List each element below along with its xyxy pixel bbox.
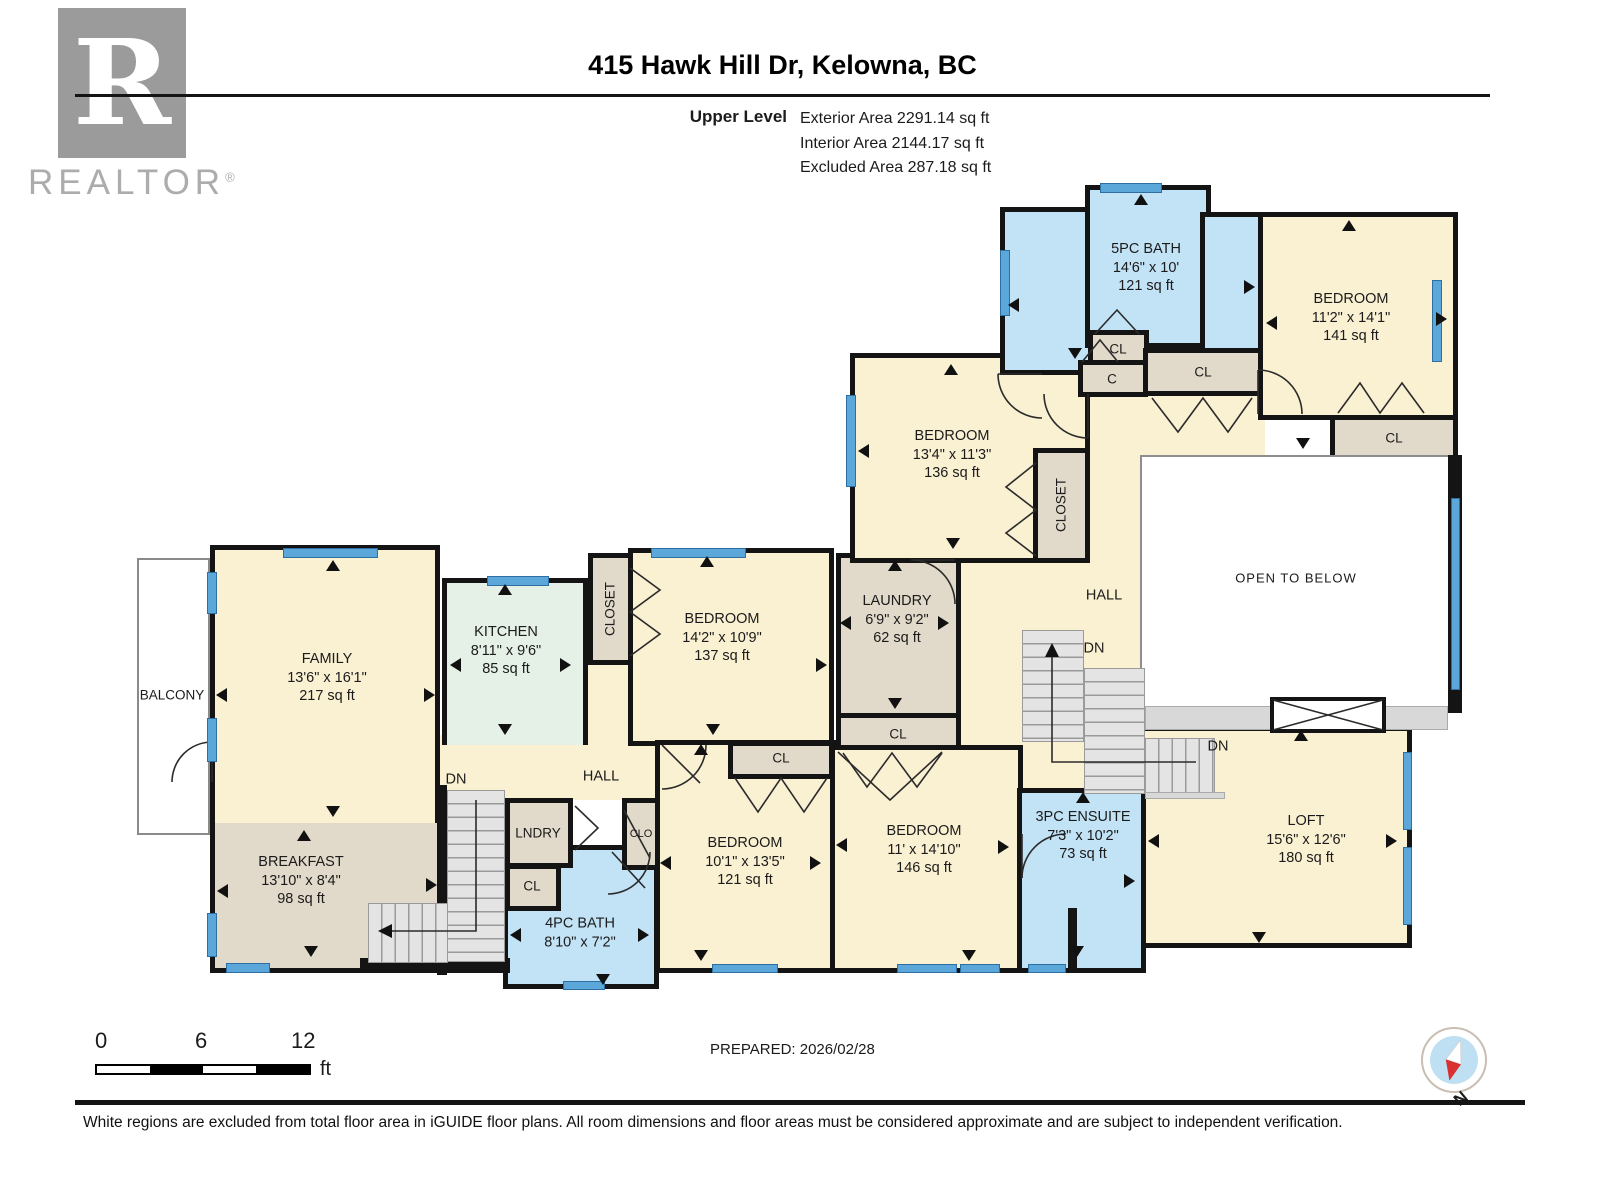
dimension-arrow bbox=[1252, 932, 1266, 943]
dimension-arrow bbox=[694, 950, 708, 961]
dimension-arrow bbox=[217, 884, 228, 898]
window bbox=[1403, 752, 1412, 830]
label-cl: CL bbox=[1109, 340, 1126, 357]
window bbox=[207, 572, 217, 614]
label-3pc-ensuite: 3PC ENSUITE7'3" x 10'2"73 sq ft bbox=[1035, 808, 1130, 864]
dimension-arrow bbox=[888, 560, 902, 571]
label-4pc-bath: 4PC BATH8'10" x 7'2" bbox=[544, 914, 615, 951]
dimension-arrow bbox=[1068, 348, 1082, 359]
dimension-arrow bbox=[944, 364, 958, 375]
label-cl: CL bbox=[889, 725, 906, 742]
dimension-arrow bbox=[1436, 312, 1447, 326]
dimension-arrow bbox=[498, 724, 512, 735]
label-cl: CL bbox=[1385, 429, 1402, 446]
label-bedroom-ne: BEDROOM11'2" x 14'1"141 sq ft bbox=[1312, 290, 1390, 346]
label-bedroom-s2: BEDROOM11' x 14'10"146 sq ft bbox=[887, 822, 962, 878]
label-family: FAMILY13'6" x 16'1"217 sq ft bbox=[287, 650, 367, 706]
label-dn-left: DN bbox=[446, 771, 467, 790]
window bbox=[1451, 498, 1460, 690]
dimension-arrow bbox=[426, 878, 437, 892]
dimension-arrow bbox=[424, 688, 435, 702]
label-cl: CL bbox=[772, 749, 789, 766]
window bbox=[207, 718, 217, 762]
dimension-arrow bbox=[938, 616, 949, 630]
window bbox=[226, 963, 270, 973]
dimension-arrow bbox=[836, 838, 847, 852]
scale-bar-unit: ft bbox=[320, 1058, 331, 1081]
stair-ledge bbox=[1145, 792, 1225, 799]
dimension-arrow bbox=[1386, 834, 1397, 848]
dimension-arrow bbox=[888, 698, 902, 709]
dimension-arrow bbox=[962, 950, 976, 961]
disclaimer-text: White regions are excluded from total fl… bbox=[83, 1114, 1343, 1132]
dimension-arrow bbox=[1266, 316, 1277, 330]
dimension-arrow bbox=[700, 556, 714, 567]
dimension-arrow bbox=[998, 840, 1009, 854]
label-closet-n: CLOSET bbox=[1052, 478, 1069, 532]
label-5pc-bath: 5PC BATH14'6" x 10'121 sq ft bbox=[1111, 240, 1181, 296]
label-dn-center: DN bbox=[1084, 640, 1105, 659]
staircase-loft-flight bbox=[1145, 738, 1215, 794]
dimension-arrow bbox=[858, 444, 869, 458]
scale-bar bbox=[95, 1064, 311, 1075]
label-clo: CLO bbox=[630, 827, 653, 841]
window bbox=[1028, 964, 1066, 973]
compass-needle bbox=[1424, 1030, 1484, 1090]
label-kitchen: KITCHEN8'11" x 9'6"85 sq ft bbox=[471, 623, 541, 679]
shaft-x-box bbox=[1270, 697, 1386, 733]
dimension-arrow bbox=[1134, 194, 1148, 205]
dimension-arrow bbox=[326, 560, 340, 571]
dimension-arrow bbox=[510, 928, 521, 942]
dimension-arrow bbox=[660, 856, 671, 870]
dimension-arrow bbox=[1244, 280, 1255, 294]
staircase-center-flight bbox=[1022, 630, 1084, 742]
compass-icon bbox=[1421, 1027, 1487, 1093]
label-lndry: LNDRY bbox=[515, 824, 561, 841]
window bbox=[897, 964, 957, 973]
window bbox=[207, 913, 217, 957]
label-bedroom-n: BEDROOM13'4" x 11'3"136 sq ft bbox=[913, 427, 991, 483]
dimension-arrow bbox=[810, 856, 821, 870]
label-bedroom-s1: BEDROOM10'1" x 13'5"121 sq ft bbox=[705, 834, 785, 890]
dimension-arrow bbox=[1070, 946, 1084, 957]
dimension-arrow bbox=[450, 658, 461, 672]
label-cl: CL bbox=[1194, 363, 1211, 380]
dimension-arrow bbox=[706, 724, 720, 735]
dimension-arrow bbox=[326, 806, 340, 817]
dimension-arrow bbox=[816, 658, 827, 672]
staircase-center-landing bbox=[1084, 668, 1145, 794]
floor-plan: FAMILY13'6" x 16'1"217 sq ft KITCHEN8'11… bbox=[0, 0, 1600, 1200]
window bbox=[487, 576, 549, 586]
window bbox=[1403, 847, 1412, 925]
wall-segment bbox=[1068, 908, 1077, 968]
label-c: C bbox=[1107, 370, 1117, 387]
dimension-arrow bbox=[1294, 730, 1308, 741]
label-dn-loft: DN bbox=[1208, 738, 1229, 757]
dimension-arrow bbox=[304, 946, 318, 957]
dimension-arrow bbox=[560, 658, 571, 672]
label-open-to-below: OPEN TO BELOW bbox=[1235, 571, 1357, 588]
window bbox=[1100, 183, 1162, 193]
label-hall-right: HALL bbox=[1086, 587, 1122, 606]
label-loft: LOFT15'6" x 12'6"180 sq ft bbox=[1266, 812, 1346, 868]
prepared-date: PREPARED: 2026/02/28 bbox=[710, 1041, 875, 1058]
label-laundry: LAUNDRY6'9" x 9'2"62 sq ft bbox=[862, 592, 931, 648]
staircase-left-turn bbox=[368, 903, 448, 963]
window bbox=[846, 395, 856, 487]
floor-plan-page: { "header": { "logo": { "letter": "R", "… bbox=[0, 0, 1600, 1200]
window bbox=[712, 964, 778, 973]
label-cl: CL bbox=[523, 877, 540, 894]
scale-bar-ticks: 0 6 12 bbox=[95, 1028, 313, 1054]
label-balcony: BALCONY bbox=[140, 686, 205, 703]
dimension-arrow bbox=[1342, 220, 1356, 231]
label-hall-left: HALL bbox=[583, 768, 619, 787]
dimension-arrow bbox=[1076, 792, 1090, 803]
label-bedroom-nw: BEDROOM14'2" x 10'9"137 sq ft bbox=[682, 610, 762, 666]
dimension-arrow bbox=[946, 538, 960, 549]
dimension-arrow bbox=[297, 830, 311, 841]
dimension-arrow bbox=[840, 616, 851, 630]
dimension-arrow bbox=[216, 688, 227, 702]
dimension-arrow bbox=[498, 584, 512, 595]
window bbox=[960, 964, 1000, 973]
dimension-arrow bbox=[1296, 438, 1310, 449]
label-closet-nw: CLOSET bbox=[601, 582, 618, 636]
window bbox=[283, 548, 378, 558]
staircase-left-flight bbox=[447, 790, 505, 962]
dimension-arrow bbox=[638, 928, 649, 942]
dimension-arrow bbox=[1148, 834, 1159, 848]
dimension-arrow bbox=[1124, 874, 1135, 888]
dimension-arrow bbox=[596, 974, 610, 985]
window bbox=[651, 548, 746, 558]
dimension-arrow bbox=[694, 744, 708, 755]
footer-divider bbox=[75, 1100, 1525, 1105]
dimension-arrow bbox=[1008, 298, 1019, 312]
label-breakfast: BREAKFAST13'10" x 8'4"98 sq ft bbox=[258, 853, 343, 909]
